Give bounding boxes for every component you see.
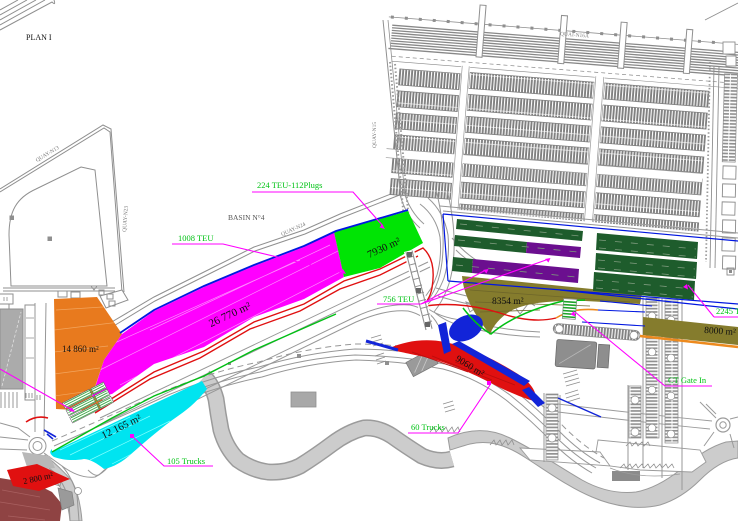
svg-text:1008 TEU: 1008 TEU (178, 233, 214, 243)
svg-text:105 Trucks: 105 Trucks (167, 456, 205, 466)
svg-text:14 860 m²: 14 860 m² (62, 344, 99, 354)
svg-text:QUAY-N15: QUAY-N15 (372, 122, 378, 148)
svg-text:CT Gate In: CT Gate In (668, 375, 707, 385)
svg-text:60 Trucks: 60 Trucks (411, 422, 445, 432)
svg-text:8354 m²: 8354 m² (492, 297, 524, 307)
svg-text:PLAN I: PLAN I (26, 33, 52, 42)
svg-text:BASIN N°4: BASIN N°4 (228, 213, 265, 222)
svg-text:224 TEU-112Plugs: 224 TEU-112Plugs (257, 180, 322, 190)
svg-text:756 TEU: 756 TEU (383, 294, 414, 304)
svg-text:2245 T: 2245 T (716, 306, 738, 316)
